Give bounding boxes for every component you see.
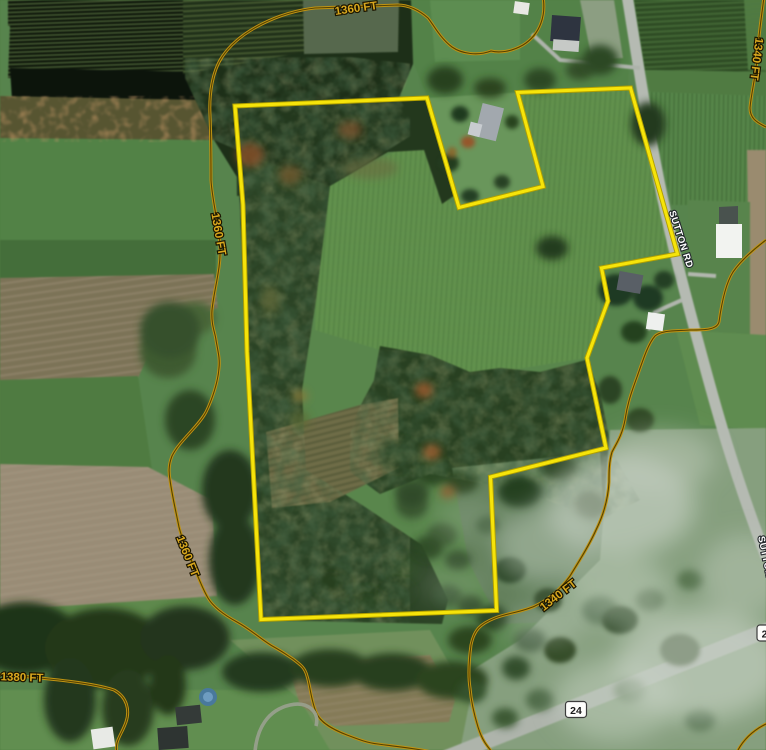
svg-text:1380 FT: 1380 FT	[0, 671, 43, 684]
svg-text:24: 24	[762, 629, 766, 641]
svg-text:24: 24	[570, 705, 582, 717]
